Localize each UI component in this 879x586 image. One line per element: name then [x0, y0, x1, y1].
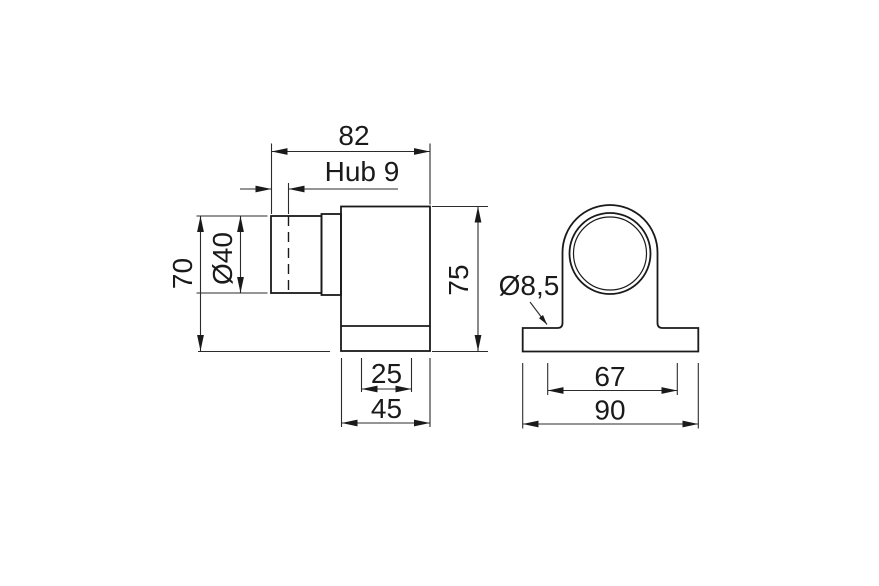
dim-d40-label: Ø40 [207, 232, 238, 285]
piston-rod-outline [271, 216, 322, 293]
dim-hub9-label: Hub 9 [325, 156, 400, 187]
dim-d85-label: Ø8,5 [499, 270, 560, 301]
side-view: 82 Hub 9 70 Ø40 75 [167, 120, 488, 427]
rod-collar-outline [322, 214, 342, 295]
leader-line [530, 302, 547, 325]
dim-67-label: 67 [594, 361, 625, 392]
dim-90-label: 90 [594, 395, 625, 426]
technical-drawing: 82 Hub 9 70 Ø40 75 [0, 0, 879, 586]
cylinder-body-outline [341, 207, 430, 352]
bore-circle [570, 213, 651, 294]
dim-slot-width: 25 [362, 358, 412, 392]
dim-body-height: 75 [432, 207, 488, 352]
dim-rod-diameter: Ø40 [197, 216, 268, 293]
dim-rod-top-to-base: 70 [167, 216, 330, 352]
front-view: Ø8,5 67 90 [499, 205, 699, 428]
dim-hole-diameter: Ø8,5 [499, 270, 560, 325]
dim-45-label: 45 [371, 393, 402, 424]
dim-25-label: 25 [371, 358, 402, 389]
dim-hole-spacing: 67 [548, 361, 678, 395]
bore-chamfer-circle [574, 217, 647, 290]
dim-82-label: 82 [338, 120, 369, 151]
dim-stroke: Hub 9 [240, 156, 399, 214]
dim-70-label: 70 [167, 258, 198, 289]
dim-75-label: 75 [443, 264, 474, 295]
technical-drawing-canvas: 82 Hub 9 70 Ø40 75 [0, 0, 879, 586]
